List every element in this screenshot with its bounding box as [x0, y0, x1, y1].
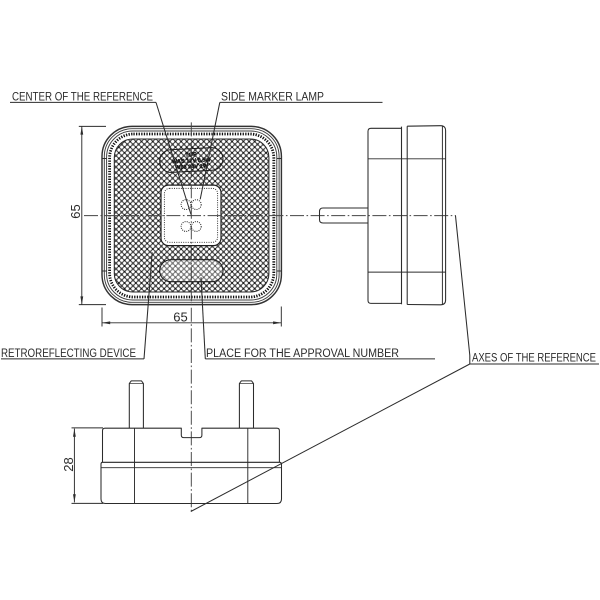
svg-text:SIDE MARKER LAMP: SIDE MARKER LAMP — [221, 89, 324, 103]
svg-text:PLACE FOR THE APPROVAL NUMBER: PLACE FOR THE APPROVAL NUMBER — [206, 346, 399, 360]
svg-text:65: 65 — [173, 309, 187, 324]
svg-text:28: 28 — [61, 457, 76, 471]
svg-text:RETROREFLECTING DEVICE: RETROREFLECTING DEVICE — [1, 346, 136, 360]
svg-text:AXES OF THE REFERENCE: AXES OF THE REFERENCE — [472, 351, 596, 365]
svg-text:CENTER OF THE REFERENCE: CENTER OF THE REFERENCE — [12, 89, 153, 103]
svg-text:65: 65 — [68, 204, 83, 218]
